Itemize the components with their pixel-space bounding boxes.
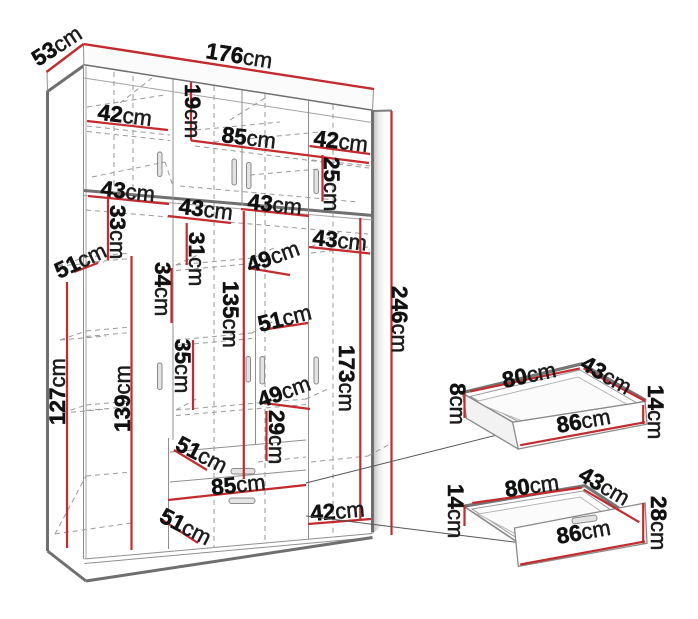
svg-text:14cm: 14cm: [443, 484, 468, 538]
svg-text:173cm: 173cm: [334, 345, 359, 412]
svg-text:31cm: 31cm: [184, 232, 209, 286]
svg-text:14cm: 14cm: [643, 385, 668, 439]
svg-text:127cm: 127cm: [45, 358, 70, 425]
svg-text:33cm: 33cm: [105, 205, 130, 259]
svg-text:8cm: 8cm: [445, 383, 470, 425]
svg-text:28cm: 28cm: [646, 496, 671, 550]
svg-text:29cm: 29cm: [264, 410, 289, 464]
svg-text:135cm: 135cm: [218, 281, 243, 348]
svg-text:42cm: 42cm: [309, 496, 365, 526]
svg-text:246cm: 246cm: [387, 286, 412, 353]
svg-text:34cm: 34cm: [150, 262, 175, 316]
svg-text:25cm: 25cm: [319, 157, 344, 211]
svg-text:139cm: 139cm: [110, 365, 135, 432]
svg-text:35cm: 35cm: [170, 339, 195, 393]
svg-text:19cm: 19cm: [180, 84, 205, 138]
